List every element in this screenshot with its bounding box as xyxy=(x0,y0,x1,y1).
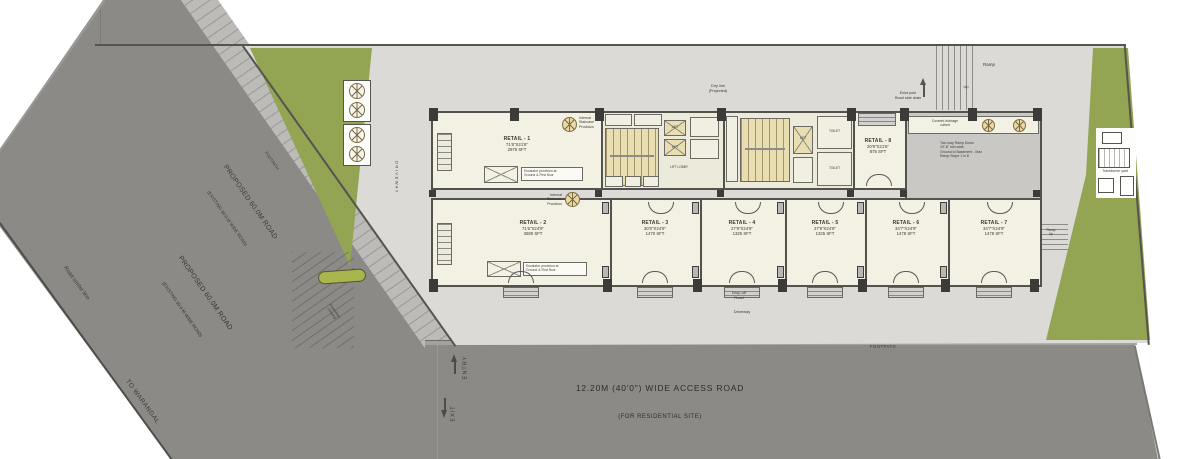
column xyxy=(941,279,950,292)
access-road-title: 12.20M (40'0") WIDE ACCESS ROAD xyxy=(480,383,840,394)
unit-label-retail-5: RETAIL - 5 27'9"X24'9" 1325 SFT xyxy=(788,220,862,236)
column xyxy=(717,190,724,197)
lift-3 xyxy=(793,126,813,154)
driveway2-label: Driveway xyxy=(717,309,767,314)
spiral-stair-icon xyxy=(562,117,577,132)
dropoff-label: Drop-off Road xyxy=(714,290,764,300)
unit-label-retail-1: RETAIL - 1 71'6"X21'6" 2975 SFT xyxy=(480,136,554,152)
escalator-provision-box xyxy=(484,166,518,183)
column xyxy=(1033,108,1042,121)
retail-2-dock xyxy=(437,223,452,265)
unit-area: 3580 SFT xyxy=(496,231,570,236)
column xyxy=(778,279,787,292)
equipment-box xyxy=(1120,176,1134,196)
tree-icon xyxy=(349,83,365,99)
service-cell xyxy=(605,114,632,126)
entry-drive-line xyxy=(437,345,438,459)
unit-area: 2975 SFT xyxy=(480,147,554,152)
tree-icon xyxy=(349,127,365,143)
fan-icon xyxy=(982,119,995,132)
drip-line-label: Drip line (Projected) xyxy=(693,84,743,93)
tree-icon xyxy=(349,146,365,162)
entrance-steps xyxy=(503,287,539,298)
column xyxy=(847,190,854,197)
transformer-box xyxy=(1098,148,1130,168)
spiral-stair-icon xyxy=(565,192,580,207)
unit-area: 1325 SFT xyxy=(788,231,862,236)
lift-lobby-label: LIFT LOBBY xyxy=(660,165,698,169)
unit-label-retail-2: RETAIL - 2 71'6"X24'9" 3580 SFT xyxy=(496,220,570,236)
unit-label-retail-6: RETAIL - 6 34'7"X24'9" 1478 SFT xyxy=(869,220,943,236)
exit-label: EXIT xyxy=(451,393,458,433)
column xyxy=(1033,190,1040,197)
staircase-2 xyxy=(740,118,790,182)
column xyxy=(1030,279,1039,292)
unit-area: 1478 SFT xyxy=(869,231,943,236)
lift-label: LIFT xyxy=(793,136,813,140)
toilet-cell xyxy=(643,176,659,187)
entrance-steps xyxy=(807,287,843,298)
ramp-up-arrow-icon xyxy=(920,78,926,85)
service-cell xyxy=(690,117,719,137)
duct-shaft xyxy=(692,202,699,214)
duct-shaft xyxy=(857,266,864,278)
culvert-label: Covered drainage culvert xyxy=(916,119,974,127)
column xyxy=(429,108,438,121)
duct-shaft xyxy=(692,266,699,278)
lift-label: LIFT xyxy=(664,125,686,129)
column xyxy=(717,108,726,121)
entry-arrow-stem xyxy=(454,362,456,374)
column xyxy=(693,279,702,292)
ramp-label: Ramp xyxy=(977,62,1001,68)
entry-label: ENTRY xyxy=(463,347,470,387)
column xyxy=(429,279,438,292)
fan-icon xyxy=(1013,119,1026,132)
entrance-steps xyxy=(888,287,924,298)
unit-label-retail-7: RETAIL - 7 34'7"X24'9" 1478 SFT xyxy=(957,220,1031,236)
duct-shaft xyxy=(940,202,947,214)
retail-1-dock xyxy=(437,133,452,171)
column xyxy=(603,279,612,292)
equipment-box xyxy=(1102,132,1122,144)
unit-area: 1325 SFT xyxy=(705,231,779,236)
column xyxy=(968,108,977,121)
unit-label-retail-3: RETAIL - 3 30'0"X24'9" 1470 SFT xyxy=(618,220,692,236)
lobby-cell xyxy=(793,157,813,183)
column xyxy=(595,190,602,197)
column xyxy=(858,279,867,292)
access-road-sub: (FOR RESIDENTIAL SITE) xyxy=(480,414,840,422)
driveway-label: DRIVEWAY xyxy=(395,148,400,208)
retail-8-porch-steps xyxy=(858,113,896,126)
entrance-steps xyxy=(976,287,1012,298)
column xyxy=(429,190,436,197)
internal-stair-note: Internal Staircase Provision xyxy=(522,193,562,206)
unit-label-retail-8: RETAIL - 8 20'9"X21'6" 875 SFT xyxy=(841,138,915,154)
ramp-note: Two way Ramp Down 10'-8" min wide Ground… xyxy=(940,141,1004,159)
column xyxy=(900,108,909,121)
equipment-box xyxy=(1098,178,1114,193)
unit-area: 1478 SFT xyxy=(957,231,1031,236)
exit-arrow-icon xyxy=(441,410,447,418)
entrance-steps xyxy=(637,287,673,298)
unit-area: 875 SFT xyxy=(841,149,915,154)
ramp-stripes xyxy=(936,46,978,110)
toilet-cell xyxy=(605,176,623,187)
stair-rail xyxy=(745,148,785,150)
site-plan: Transformer yard Ramp Up Drip line (Proj… xyxy=(0,0,1199,459)
column xyxy=(900,190,907,197)
ramp-up-label: Up xyxy=(956,84,976,89)
duct-shaft xyxy=(602,202,609,214)
access-road-label: 12.20M (40'0") WIDE ACCESS ROAD (FOR RES… xyxy=(480,363,840,441)
toilet-cell xyxy=(625,176,641,187)
column xyxy=(510,108,519,121)
exit-arrow-stem xyxy=(444,398,446,410)
unit-label-retail-4: RETAIL - 4 27'9"X24'9" 1325 SFT xyxy=(705,220,779,236)
duct-shaft xyxy=(602,266,609,278)
dimension-tick xyxy=(100,8,101,44)
duct-shaft xyxy=(777,202,784,214)
duct-shaft xyxy=(857,202,864,214)
toilet-label: TOILET xyxy=(817,166,852,170)
tree-icon xyxy=(349,102,365,118)
duct-shaft xyxy=(777,266,784,278)
escalator-note: Escalator provision at Ground & First fl… xyxy=(523,262,587,276)
unit-area: 1470 SFT xyxy=(618,231,692,236)
duct-shaft xyxy=(940,266,947,278)
column xyxy=(847,108,856,121)
entry-arrow-icon xyxy=(451,354,457,362)
lift-label: LIFT xyxy=(664,145,686,149)
stair-rail xyxy=(610,155,654,157)
exist-pole-label: Exist pole Road side drain xyxy=(883,91,933,100)
transformer-yard-label: Transformer yard xyxy=(1090,169,1140,173)
service-cell xyxy=(634,114,662,126)
footpath-bottom-label: FOOTPATH xyxy=(853,344,913,349)
service-cell xyxy=(690,139,719,159)
toilet-label: TOILET xyxy=(817,129,852,133)
escalator-note: Escalator provision at Ground & First fl… xyxy=(521,167,583,181)
service-shaft xyxy=(726,116,738,182)
column xyxy=(595,108,604,121)
